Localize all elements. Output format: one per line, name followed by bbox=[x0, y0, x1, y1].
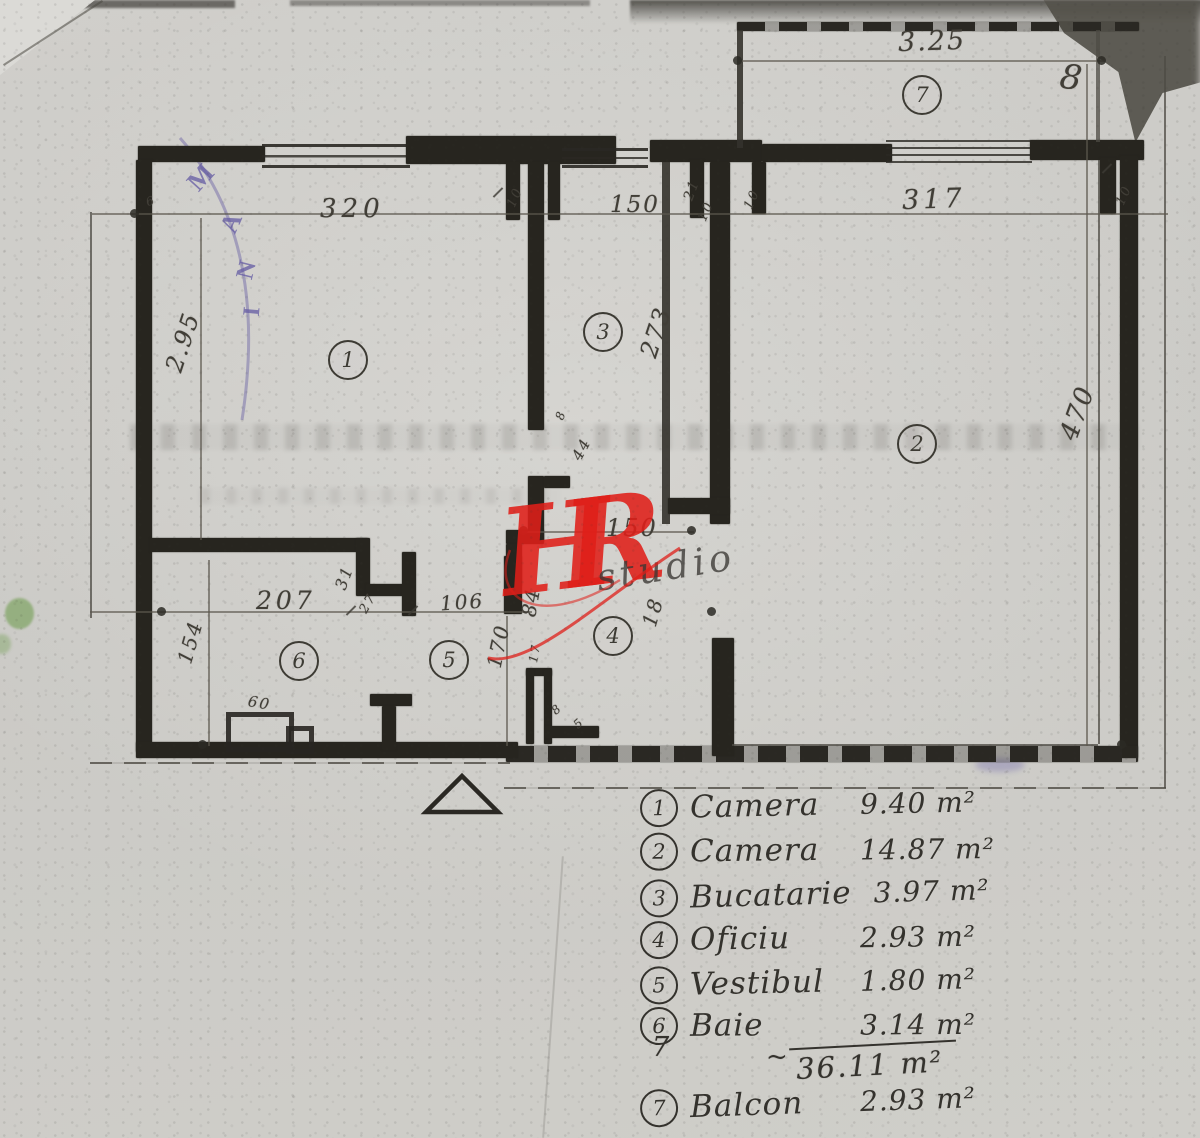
dimension-label: 320 bbox=[320, 194, 385, 224]
wall-segment bbox=[138, 146, 265, 162]
boundary-line bbox=[1098, 160, 1100, 744]
dimension-node bbox=[130, 209, 139, 218]
entry-door-jamb bbox=[370, 694, 412, 706]
room-label-5: 5 bbox=[429, 640, 469, 680]
boundary-line bbox=[1164, 56, 1166, 788]
legend-room-name: Camera bbox=[690, 832, 838, 870]
legend-room-number: 2 bbox=[640, 832, 678, 870]
dimension-label: 273 bbox=[635, 303, 678, 361]
legend-room-area: 9.40 m² bbox=[860, 785, 977, 820]
legend-room-number: 1 bbox=[640, 789, 679, 828]
window bbox=[262, 144, 410, 168]
legend-row: 6 Baie 3.14 m² bbox=[640, 1005, 976, 1045]
wall-segment bbox=[762, 144, 892, 162]
legend-room-area: 1.80 m² bbox=[860, 962, 977, 998]
balcony-side bbox=[737, 30, 743, 148]
balcony-window bbox=[886, 140, 1032, 167]
dimension-node bbox=[198, 740, 207, 749]
dimension-line bbox=[208, 560, 210, 746]
room-label-7: 7 bbox=[902, 75, 942, 115]
wall-left-exterior bbox=[136, 160, 152, 752]
legend-room-number: 5 bbox=[640, 966, 679, 1005]
legend-room-name: Balcon bbox=[689, 1084, 838, 1125]
bathtub-fixture-step bbox=[286, 726, 314, 754]
legend-room-area: 3.97 m² bbox=[873, 873, 990, 909]
dimension-line bbox=[742, 60, 1104, 62]
entry-door-jamb bbox=[382, 706, 396, 750]
dimension-tick bbox=[493, 187, 504, 198]
fold-line bbox=[542, 856, 564, 1137]
legend-room-number: 3 bbox=[640, 879, 679, 918]
legend-room-name: Bucatarie bbox=[690, 875, 853, 915]
legend-row: 3 Bucatarie 3.97 m² bbox=[640, 870, 991, 918]
scanned-floor-plan-page: M A N I bbox=[0, 0, 1200, 1138]
dimension-label: 106 bbox=[439, 588, 485, 615]
hole-punch-green-dot bbox=[0, 634, 11, 654]
dimension-label: 8 bbox=[1057, 57, 1086, 100]
legend-row-balcony: 7 Balcon 2.93 m² bbox=[639, 1078, 976, 1128]
wall-shaft-cap bbox=[668, 498, 730, 514]
legend-room-area: 14.87 m² bbox=[860, 832, 995, 866]
wall-segment bbox=[650, 140, 762, 162]
room-label-1: 1 bbox=[328, 340, 368, 380]
wall-room2-oficiu bbox=[712, 638, 734, 756]
legend-total-tilde: ~ bbox=[766, 1042, 790, 1072]
dimension-line bbox=[200, 218, 202, 540]
legend-room-area: 3.14 m² bbox=[860, 1007, 976, 1041]
balcony-side bbox=[1096, 30, 1100, 142]
legend-room-area: 2.93 m² bbox=[860, 919, 976, 954]
bathtub-fixture bbox=[226, 712, 294, 752]
boundary-line bbox=[90, 762, 510, 764]
legend-row: 1 Camera 9.40 m² bbox=[640, 782, 977, 827]
dimension-label: 8 bbox=[553, 408, 569, 422]
dimension-node bbox=[157, 607, 166, 616]
wall-kitchen-room2 bbox=[710, 162, 730, 524]
dimension-label: 3.25 bbox=[897, 25, 966, 58]
wall-bottom-exterior bbox=[136, 742, 518, 758]
legend-room-name: Camera bbox=[690, 786, 839, 825]
dimension-label: 150 bbox=[610, 192, 660, 218]
window bbox=[562, 148, 648, 168]
wall-right-exterior bbox=[1120, 156, 1138, 758]
legend-room-number: 4 bbox=[640, 921, 679, 960]
wall-baie-stub bbox=[545, 726, 599, 738]
wall-room1-baie bbox=[150, 538, 368, 552]
entrance-triangle-icon bbox=[420, 770, 504, 818]
watermark-flourish bbox=[480, 540, 710, 670]
room-label-2: 2 bbox=[897, 424, 937, 464]
room-label-6: 6 bbox=[279, 641, 319, 681]
dimension-node bbox=[687, 526, 696, 535]
legend-room-name: Baie bbox=[690, 1007, 838, 1044]
legend-room-name: Oficiu bbox=[690, 920, 838, 958]
legend-total-marker: 7 bbox=[652, 1032, 671, 1063]
legend-room-name: Vestibul bbox=[690, 963, 839, 1002]
wall-baie-stub bbox=[526, 670, 534, 744]
hole-punch-green-dot bbox=[5, 598, 34, 629]
scan-edge-top-band bbox=[290, 0, 590, 6]
dimension-label: 154 bbox=[172, 617, 207, 666]
legend-room-area: 2.93 m² bbox=[859, 1081, 976, 1118]
room-label-3: 3 bbox=[583, 312, 623, 352]
dimension-label: 317 bbox=[901, 183, 966, 216]
legend-row: 5 Vestibul 1.80 m² bbox=[640, 959, 977, 1005]
legend-room-number: 7 bbox=[639, 1089, 678, 1128]
wall-segment bbox=[548, 162, 560, 220]
legend-row: 2 Camera 14.87 m² bbox=[640, 829, 995, 871]
boundary-line bbox=[90, 212, 92, 618]
wall-room1-kitchen bbox=[528, 162, 544, 430]
legend-row: 4 Oficiu 2.93 m² bbox=[640, 917, 977, 960]
dimension-label: 60 bbox=[247, 692, 273, 714]
dimension-node bbox=[1117, 740, 1126, 749]
dimension-label: 31 bbox=[331, 563, 357, 592]
wall-bottom-exterior bbox=[506, 746, 1138, 762]
dimension-label: 207 bbox=[256, 586, 316, 615]
boundary-line bbox=[732, 744, 1098, 746]
dimension-node bbox=[1097, 56, 1106, 65]
dimension-node bbox=[733, 56, 742, 65]
